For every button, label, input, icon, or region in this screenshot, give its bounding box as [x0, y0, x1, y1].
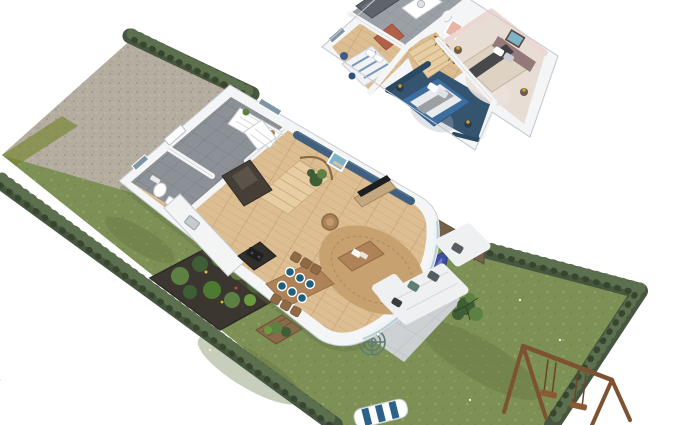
storage-plant [243, 109, 250, 116]
floor-plan-canvas [0, 0, 680, 425]
swing-seat [570, 401, 588, 410]
lamp [398, 84, 402, 88]
floor-plan-render [0, 0, 680, 425]
lamp [466, 120, 470, 124]
blue-throw [349, 73, 356, 80]
washbasin [417, 0, 424, 7]
laundry-basket [340, 52, 348, 60]
lamp [522, 88, 526, 92]
upper-floor [322, 0, 558, 150]
lamp [456, 46, 460, 50]
